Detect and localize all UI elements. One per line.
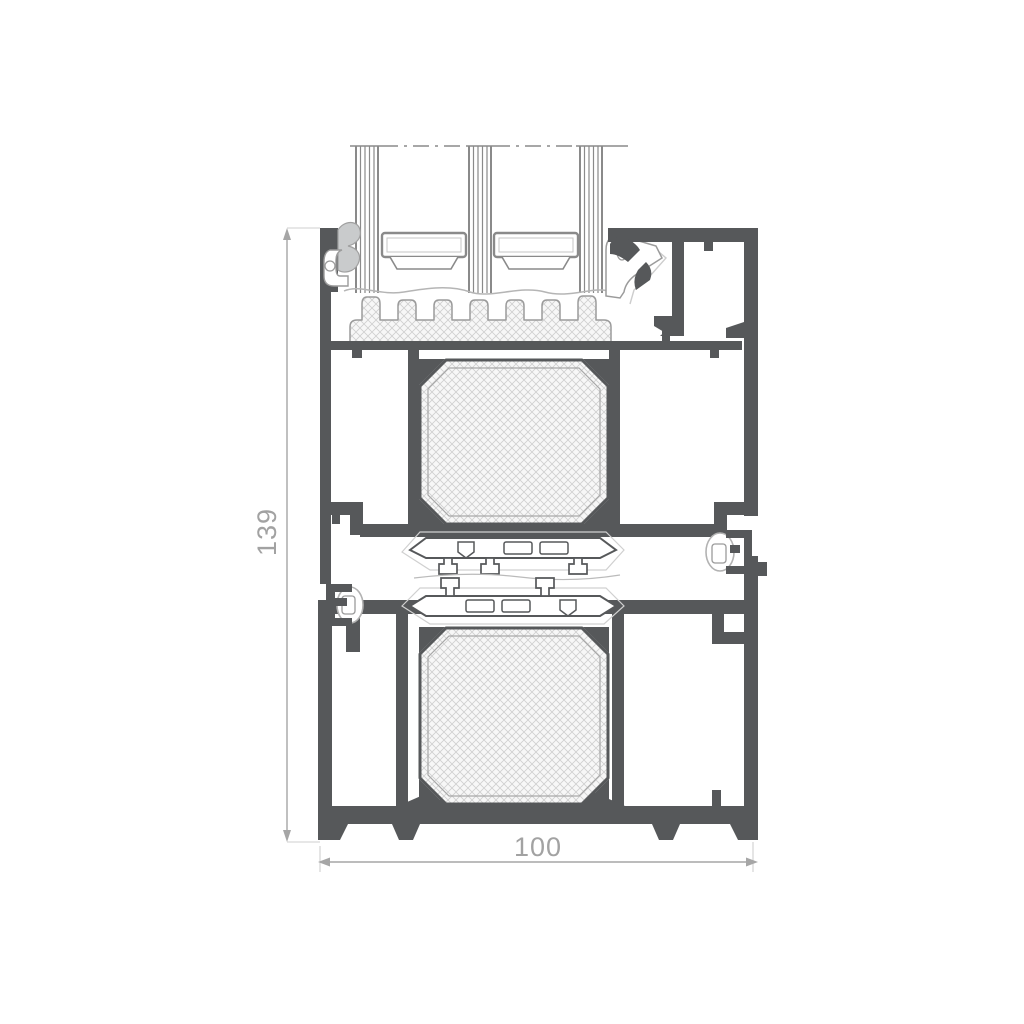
frame-foam-chamber-wall-left: [396, 614, 408, 806]
sash-top-bar: [608, 228, 758, 242]
dimension-height-value: 139: [252, 508, 282, 556]
sash-insulation-foam: [419, 359, 609, 525]
sash-foam-chamber-wall-left: [408, 350, 419, 528]
glazing-packer: [350, 296, 611, 345]
bulb-gasket-left: [326, 584, 363, 626]
glazing-unit: [344, 146, 628, 294]
center-gaskets: [402, 532, 624, 624]
glazing-spacer-bar: [494, 233, 578, 269]
frame-left-wall: [318, 612, 332, 806]
bulb-gasket-right: [706, 530, 752, 574]
glass-pane: [356, 146, 378, 293]
frame-foam-chamber-wall-right: [612, 606, 624, 806]
arrowhead-right: [746, 858, 758, 867]
technical-drawing-canvas: 139 100: [0, 0, 1024, 1024]
sash-foam-chamber-wall-right: [609, 350, 620, 528]
lower-gasket: [410, 578, 616, 616]
window-profile-cross-section: 139 100: [0, 0, 1024, 1024]
sash-right-wall: [744, 228, 758, 516]
frame-right-wall: [744, 556, 758, 806]
sash-web-bottom: [360, 524, 718, 537]
glass-pane: [469, 146, 491, 293]
glass-pane: [580, 146, 602, 293]
upper-gasket: [410, 538, 616, 574]
dimension-width-value: 100: [514, 832, 562, 862]
frame-insulation-foam: [419, 627, 609, 805]
glazing-spacer-bar: [382, 233, 466, 269]
arrowhead-down: [283, 830, 291, 842]
dimension-horizontal: 100: [318, 832, 758, 872]
arrowhead-up: [283, 228, 291, 240]
sash-web-top: [330, 341, 742, 350]
dimension-vertical: 139: [252, 228, 320, 842]
frame-bottom-bar: [318, 806, 758, 824]
